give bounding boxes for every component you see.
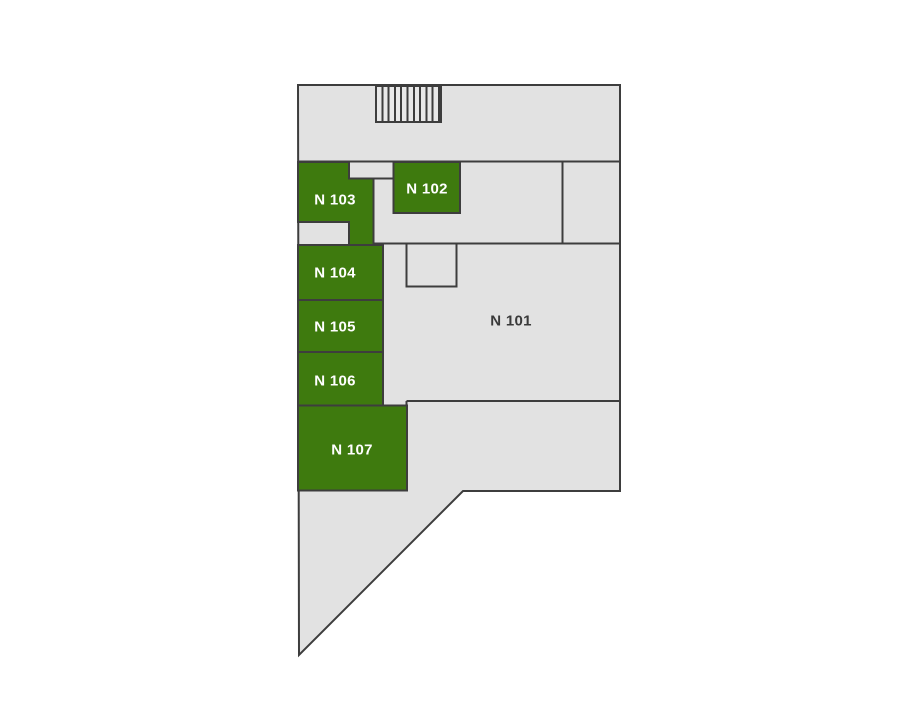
room-n102[interactable]	[394, 162, 461, 213]
closet-room	[407, 244, 457, 287]
room-n107[interactable]	[298, 406, 407, 491]
room-n104[interactable]	[298, 245, 383, 300]
room-n105[interactable]	[298, 300, 383, 352]
stairs-hatch	[375, 85, 442, 123]
floor-plan-svg	[0, 0, 912, 722]
room-n106[interactable]	[298, 352, 383, 406]
floor-plan-canvas: N 101 N 102 N 103 N 104 N 105 N 106 N 10…	[0, 0, 912, 722]
